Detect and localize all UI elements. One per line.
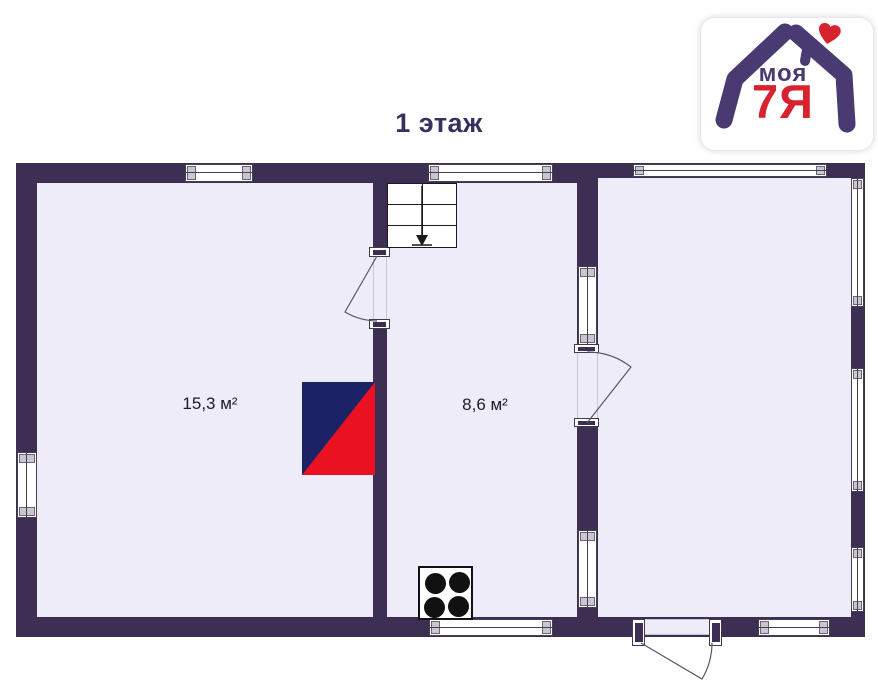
door-jamb — [574, 344, 599, 353]
door-jamb — [632, 619, 645, 646]
door-jamb — [369, 319, 390, 329]
annex-floor — [598, 178, 851, 617]
door-opening-room1-room2 — [373, 257, 387, 319]
window-top-middle — [428, 164, 553, 182]
window-top-left — [185, 164, 253, 182]
room-area-label-left: 15,3 м² — [140, 394, 280, 414]
stairs-with-down-arrow — [387, 183, 457, 248]
window-annex-right-3 — [851, 547, 864, 612]
door-opening-exterior — [645, 619, 709, 635]
window-annex-right-2 — [851, 368, 864, 492]
door-opening-room2-room3 — [577, 353, 598, 418]
four-burner-cooktop-icon — [418, 566, 473, 620]
door-jamb — [369, 247, 390, 257]
room-area-label-middle: 8,6 м² — [420, 395, 550, 415]
window-bottom-middle — [429, 619, 553, 636]
door-jamb — [574, 418, 599, 427]
floor-plan: 15,3 м² 8,6 м² — [0, 0, 878, 687]
window-annex-bottom — [758, 619, 830, 636]
window-left-wall — [17, 452, 37, 518]
window-annex-top — [633, 164, 827, 177]
furnace-stove-symbol — [302, 382, 375, 475]
window-mid-wall-upper — [578, 266, 597, 345]
window-annex-right-1 — [851, 178, 864, 307]
door-jamb — [709, 619, 722, 646]
window-mid-wall-lower — [578, 530, 597, 608]
